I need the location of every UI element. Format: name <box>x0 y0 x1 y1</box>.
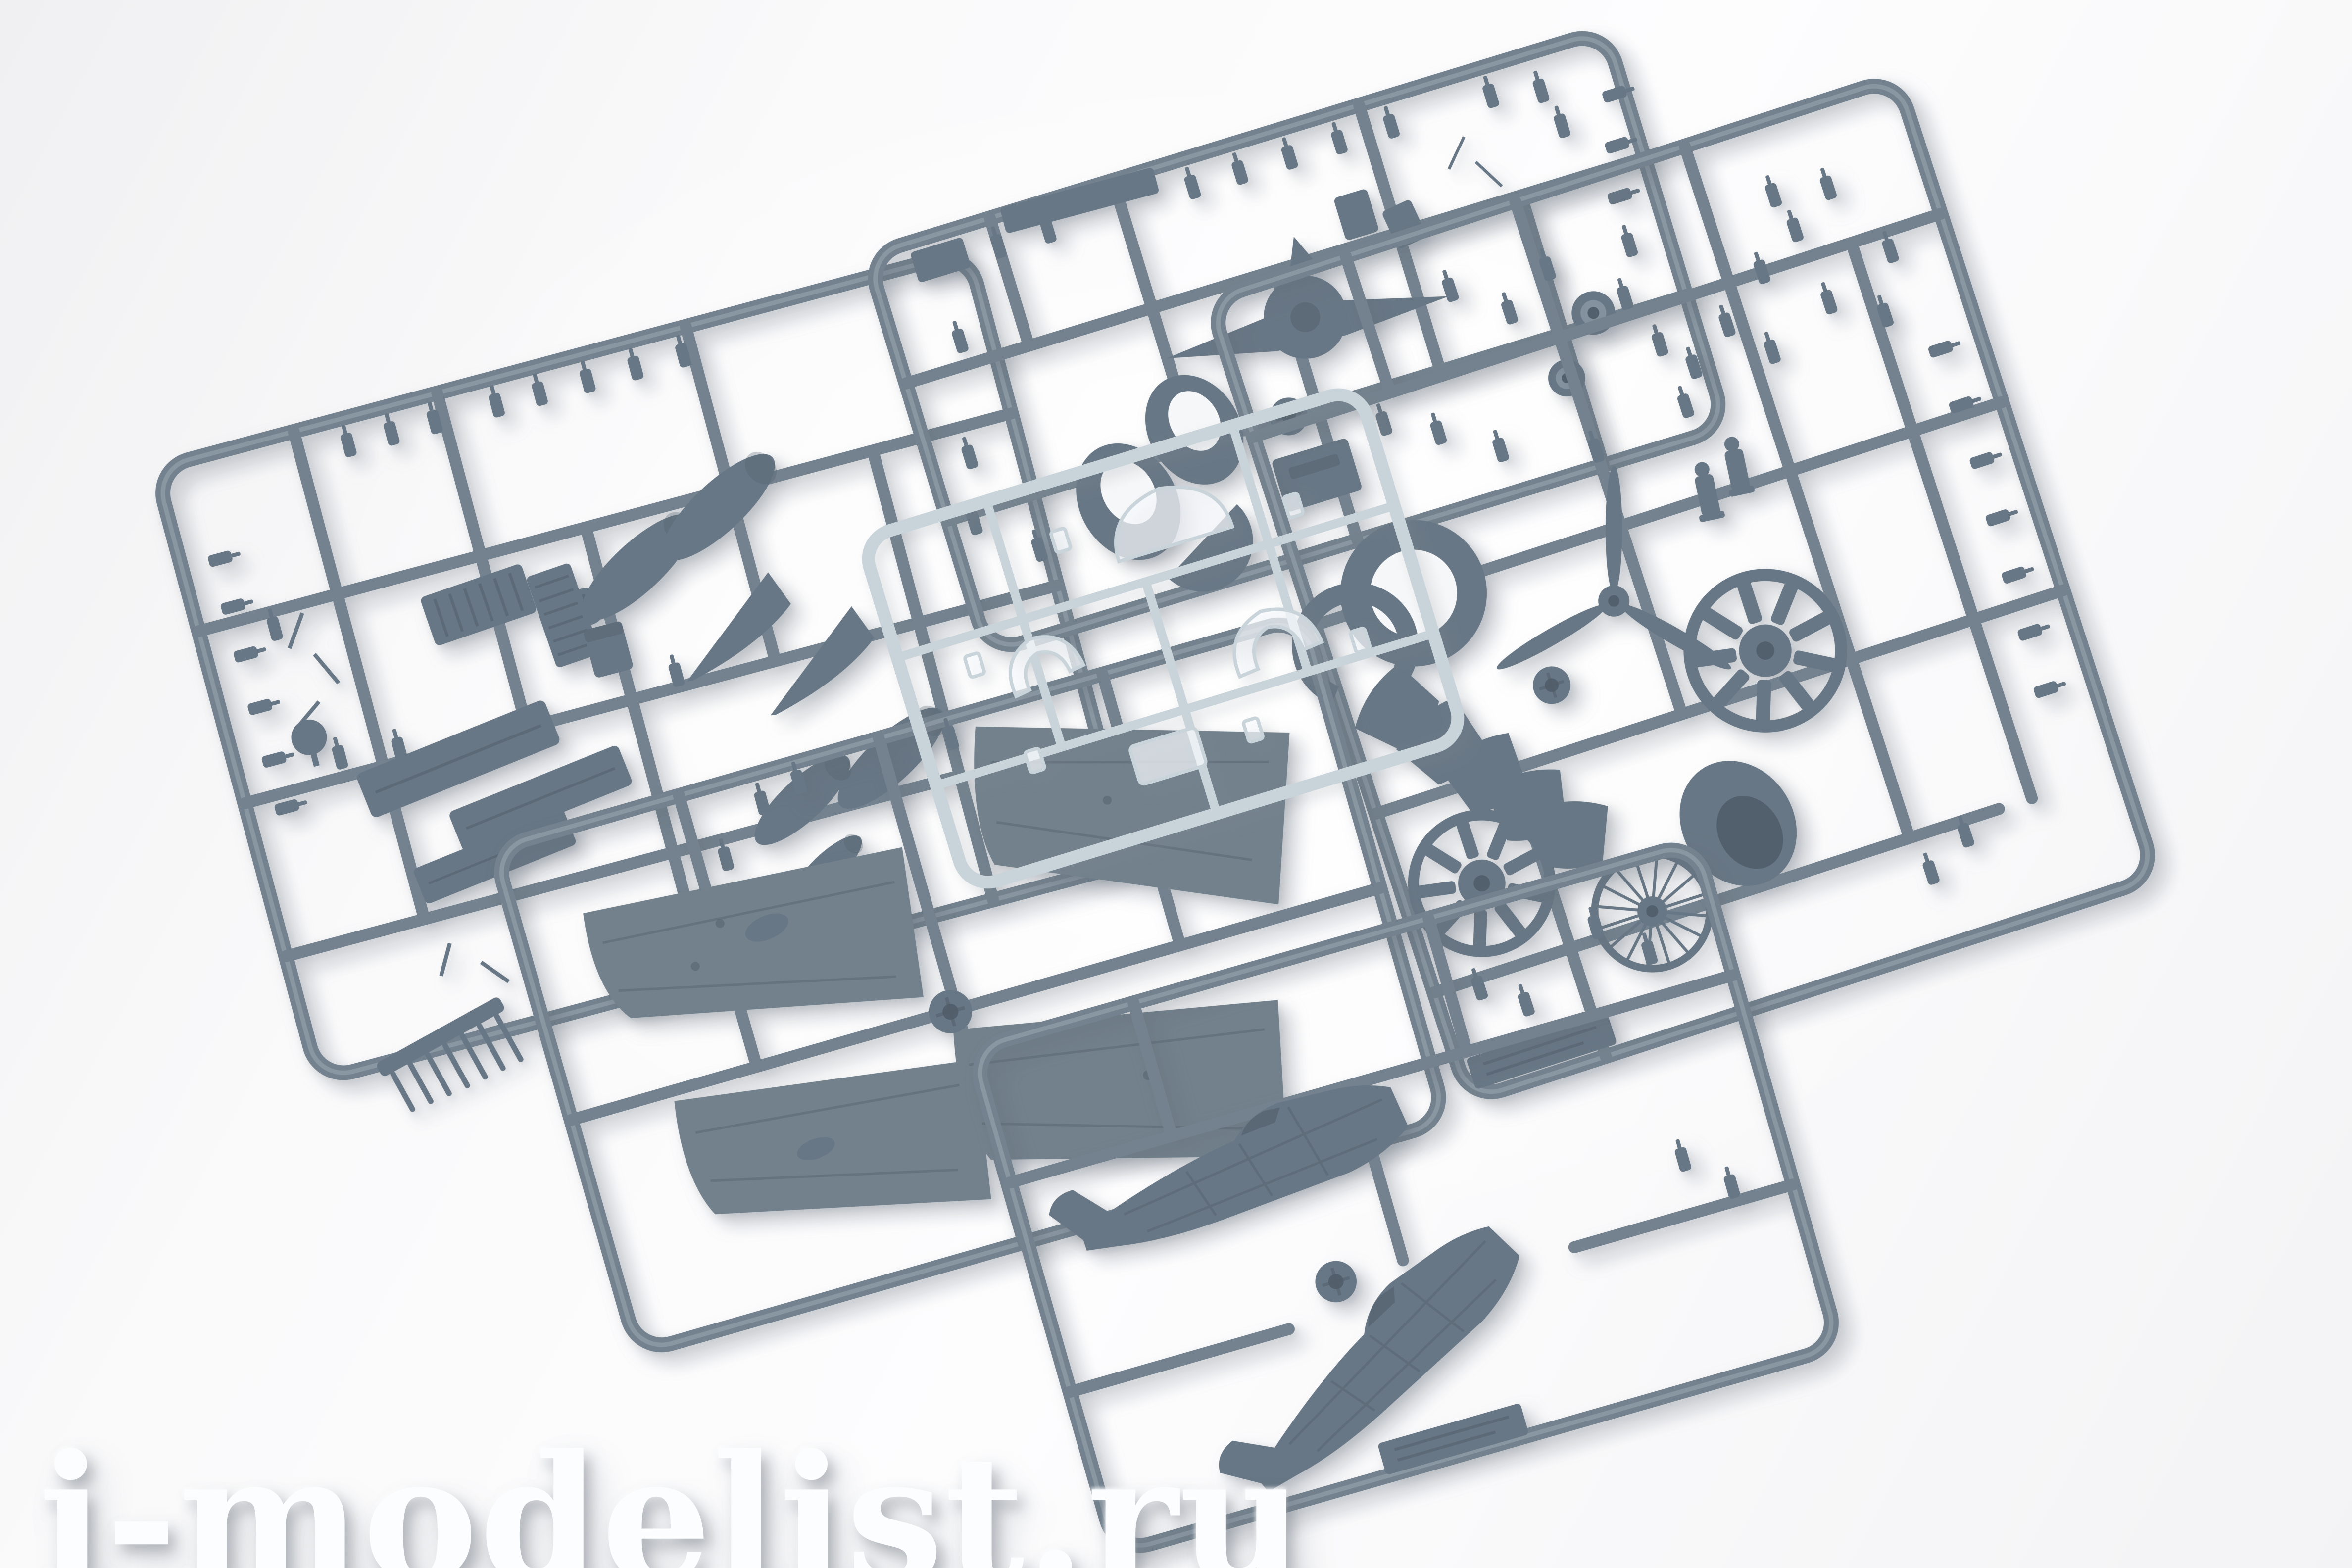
tail-fin-part <box>660 570 802 683</box>
gun-barrel-comb <box>375 996 532 1125</box>
wing-half-panel <box>580 847 924 1037</box>
watermark-text: i-modelist.ru <box>39 1417 1306 1568</box>
wing-half-panel <box>673 1059 991 1231</box>
runner-junction-hub <box>1311 1256 1362 1307</box>
ribbed-radiator-plate <box>420 563 538 647</box>
antenna-stick-parts <box>1440 129 1503 200</box>
cockpit-seat-part <box>583 621 634 679</box>
cowling-bowl <box>1656 738 1820 908</box>
runner-junction-hub <box>1528 661 1575 709</box>
exhaust-dome-part <box>287 716 334 771</box>
small-parts-row <box>338 334 692 458</box>
photo-stage: i-modelist.ru <box>0 0 2352 1568</box>
sprues-photo <box>0 0 2352 1568</box>
